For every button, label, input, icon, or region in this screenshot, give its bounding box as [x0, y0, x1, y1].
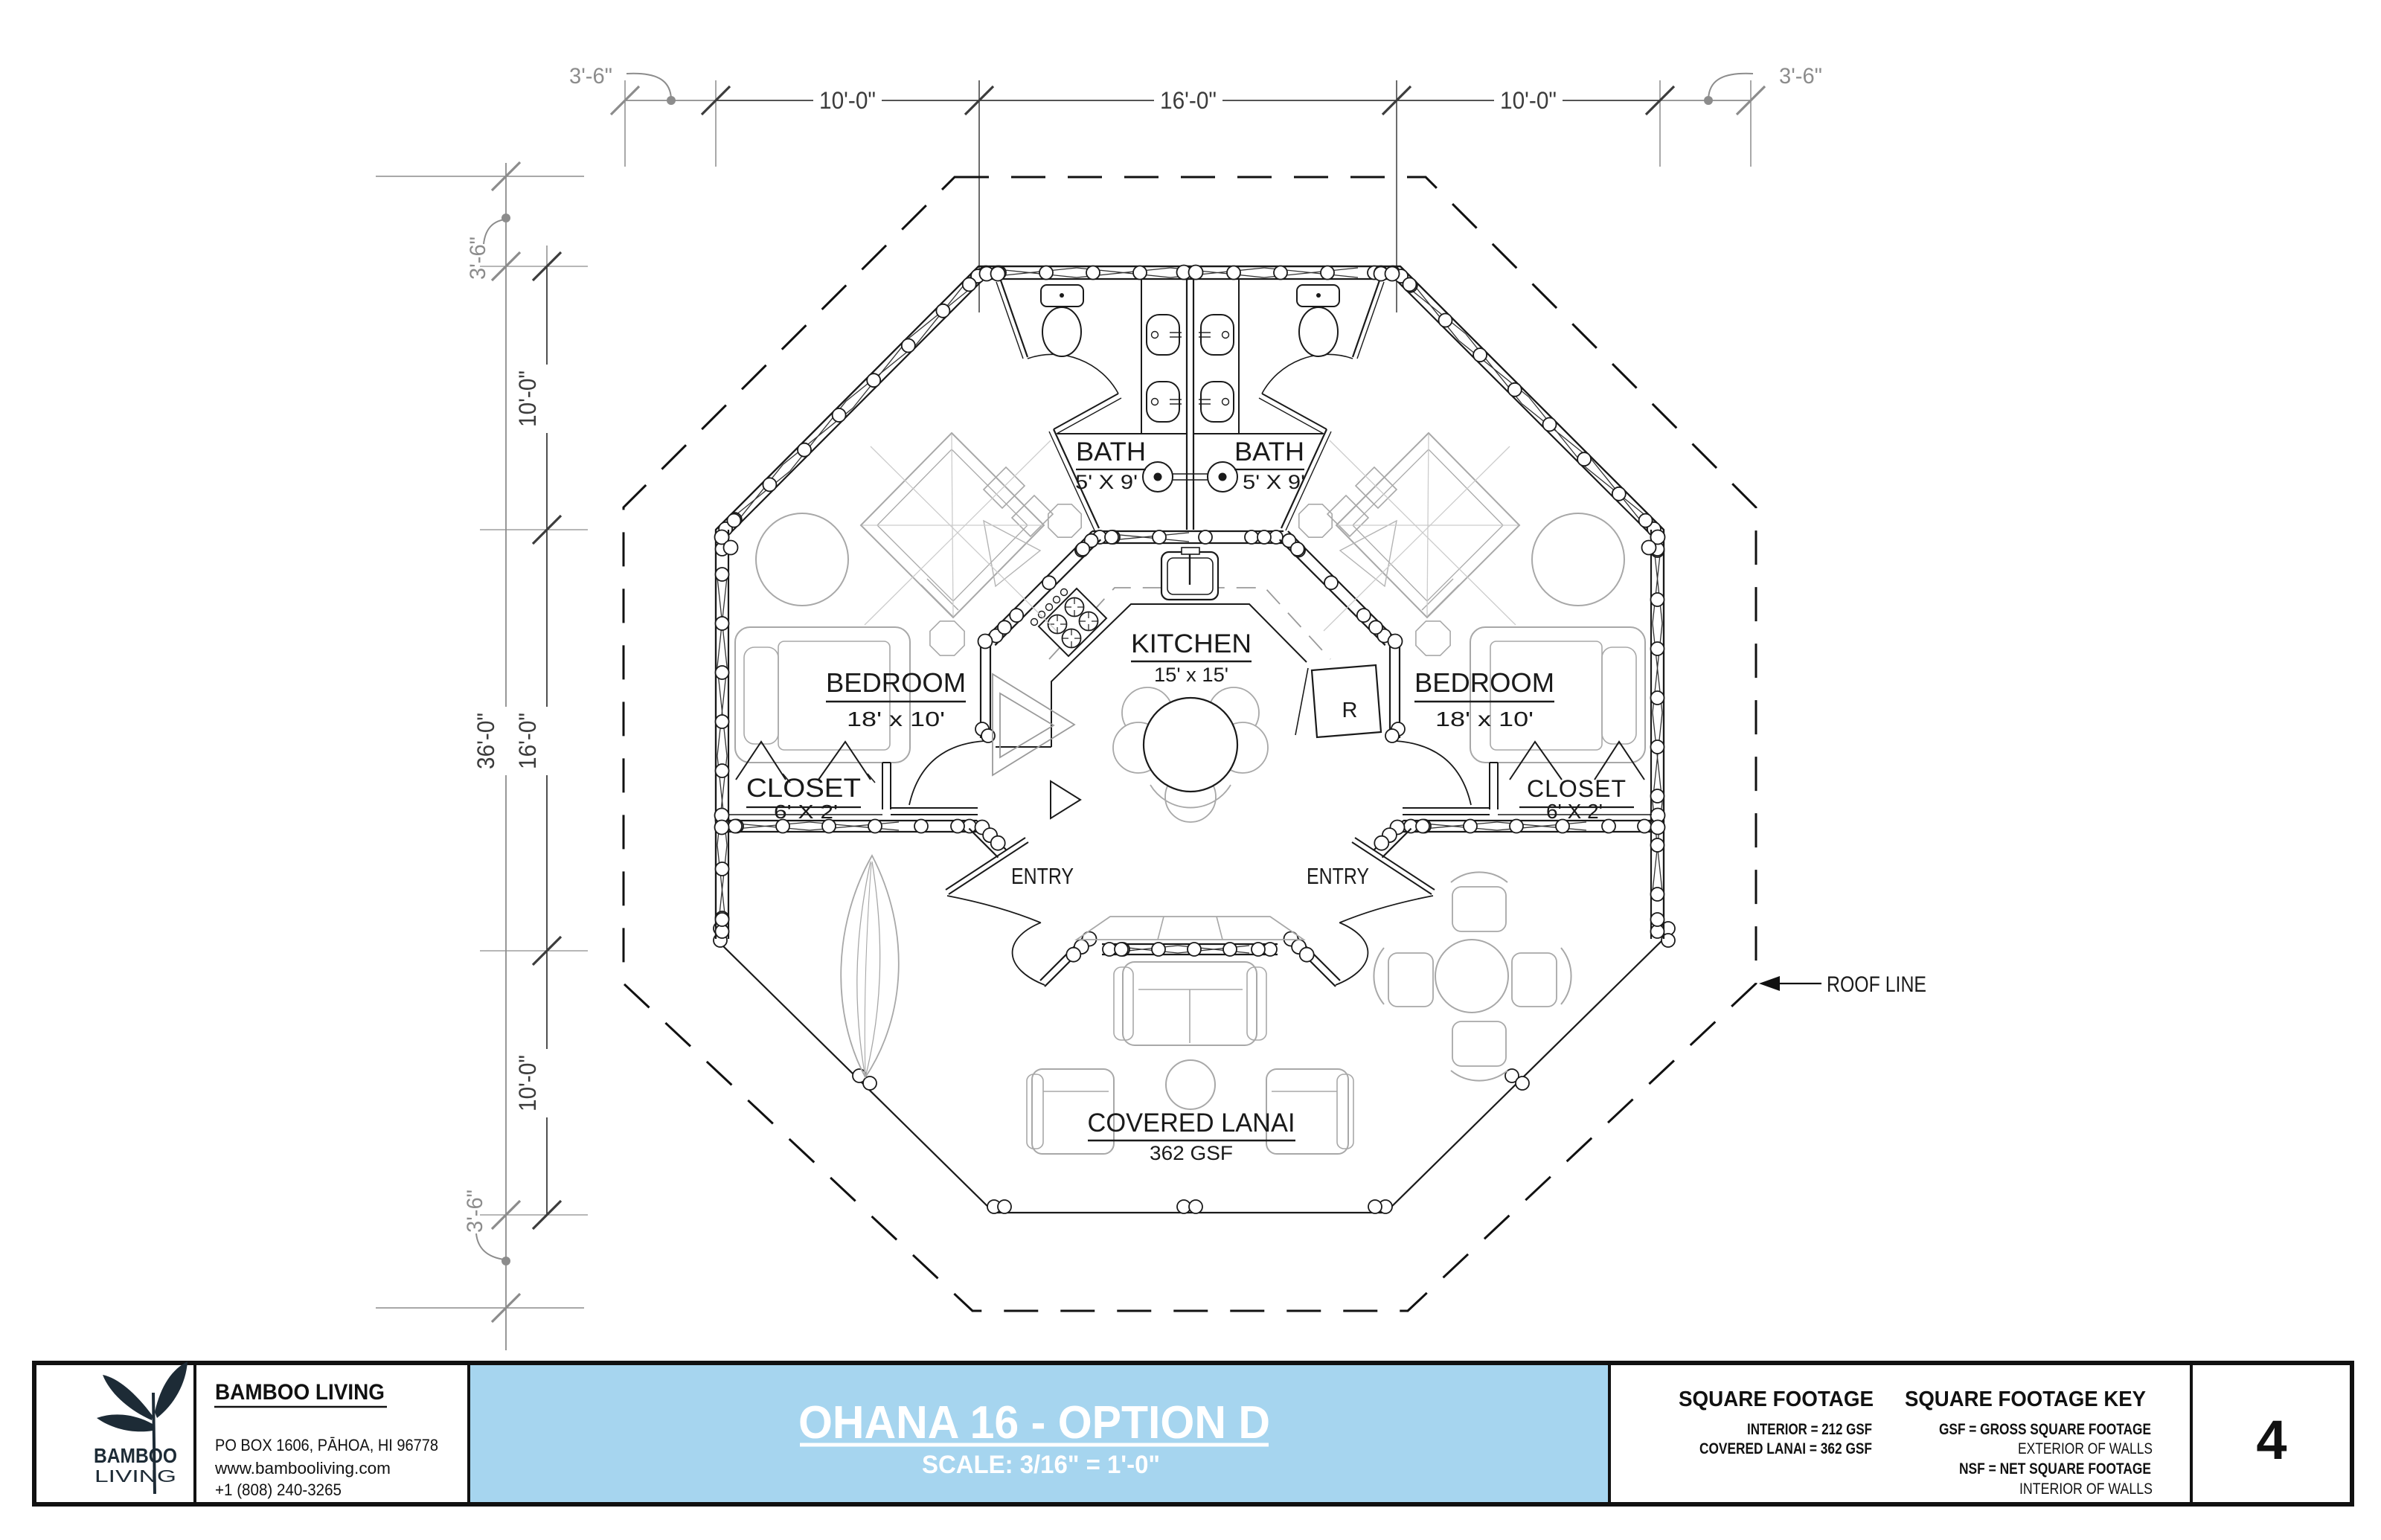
- svg-text:INTERIOR = 212 GSF: INTERIOR = 212 GSF: [1747, 1421, 1872, 1438]
- svg-text:10'-0": 10'-0": [514, 1055, 541, 1111]
- svg-text:CLOSET: CLOSET: [1527, 775, 1627, 802]
- svg-text:3'-6": 3'-6": [463, 1190, 487, 1233]
- svg-text:ENTRY: ENTRY: [1307, 863, 1369, 889]
- svg-text:5' X 9': 5' X 9': [1075, 471, 1138, 493]
- svg-text:BEDROOM: BEDROOM: [1414, 667, 1554, 698]
- svg-text:SQUARE FOOTAGE: SQUARE FOOTAGE: [1679, 1387, 1874, 1411]
- svg-text:LIVING: LIVING: [94, 1466, 176, 1486]
- svg-text:6' X 2': 6' X 2': [1546, 800, 1603, 823]
- svg-text:3'-6": 3'-6": [466, 237, 490, 280]
- svg-text:BATH: BATH: [1234, 437, 1304, 466]
- svg-text:CLOSET: CLOSET: [746, 774, 861, 803]
- svg-text:SQUARE FOOTAGE KEY: SQUARE FOOTAGE KEY: [1905, 1387, 2146, 1411]
- svg-text:COVERED LANAI: COVERED LANAI: [1088, 1109, 1295, 1138]
- svg-text:10'-0": 10'-0": [819, 87, 876, 114]
- svg-text:4: 4: [2256, 1409, 2287, 1471]
- svg-text:ROOF LINE: ROOF LINE: [1827, 972, 1926, 997]
- svg-text:KITCHEN: KITCHEN: [1131, 629, 1252, 658]
- svg-text:18' x 10': 18' x 10': [1435, 708, 1534, 731]
- svg-text:10'-0": 10'-0": [514, 370, 541, 427]
- svg-text:www.bambooliving.com: www.bambooliving.com: [214, 1459, 391, 1478]
- svg-text:+1 (808) 240-3265: +1 (808) 240-3265: [215, 1480, 342, 1499]
- svg-text:BAMBOO LIVING: BAMBOO LIVING: [215, 1380, 385, 1405]
- svg-text:INTERIOR OF WALLS: INTERIOR OF WALLS: [2019, 1480, 2153, 1498]
- svg-text:EXTERIOR OF WALLS: EXTERIOR OF WALLS: [2018, 1440, 2153, 1457]
- svg-text:362 GSF: 362 GSF: [1150, 1142, 1233, 1164]
- svg-text:BEDROOM: BEDROOM: [826, 667, 966, 698]
- svg-text:BAMBOO: BAMBOO: [94, 1444, 177, 1467]
- svg-text:15' x 15': 15' x 15': [1154, 664, 1228, 686]
- svg-text:16'-0": 16'-0": [1160, 87, 1217, 114]
- svg-text:3'-6": 3'-6": [569, 64, 612, 89]
- svg-text:18' x 10': 18' x 10': [847, 708, 945, 731]
- svg-text:6' X 2': 6' X 2': [774, 801, 838, 823]
- svg-text:COVERED LANAI = 362 GSF: COVERED LANAI = 362 GSF: [1699, 1440, 1872, 1457]
- svg-text:16'-0": 16'-0": [514, 713, 541, 769]
- svg-text:BATH: BATH: [1076, 437, 1146, 466]
- svg-text:ENTRY: ENTRY: [1011, 863, 1074, 889]
- svg-text:R: R: [1342, 699, 1358, 722]
- svg-text:10'-0": 10'-0": [1500, 87, 1557, 114]
- svg-text:PO BOX 1606, PĀHOA, HI 96778: PO BOX 1606, PĀHOA, HI 96778: [215, 1436, 438, 1454]
- svg-text:NSF = NET SQUARE FOOTAGE: NSF = NET SQUARE FOOTAGE: [1959, 1460, 2151, 1478]
- svg-text:GSF = GROSS SQUARE FOOTAGE: GSF = GROSS SQUARE FOOTAGE: [1939, 1421, 2151, 1438]
- svg-text:OHANA 16 - OPTION D: OHANA 16 - OPTION D: [798, 1397, 1270, 1448]
- svg-text:3'-6": 3'-6": [1779, 64, 1822, 89]
- svg-text:5' X 9': 5' X 9': [1243, 471, 1305, 493]
- svg-text:36'-0": 36'-0": [472, 713, 499, 769]
- svg-text:SCALE: 3/16" = 1'-0": SCALE: 3/16" = 1'-0": [922, 1451, 1160, 1479]
